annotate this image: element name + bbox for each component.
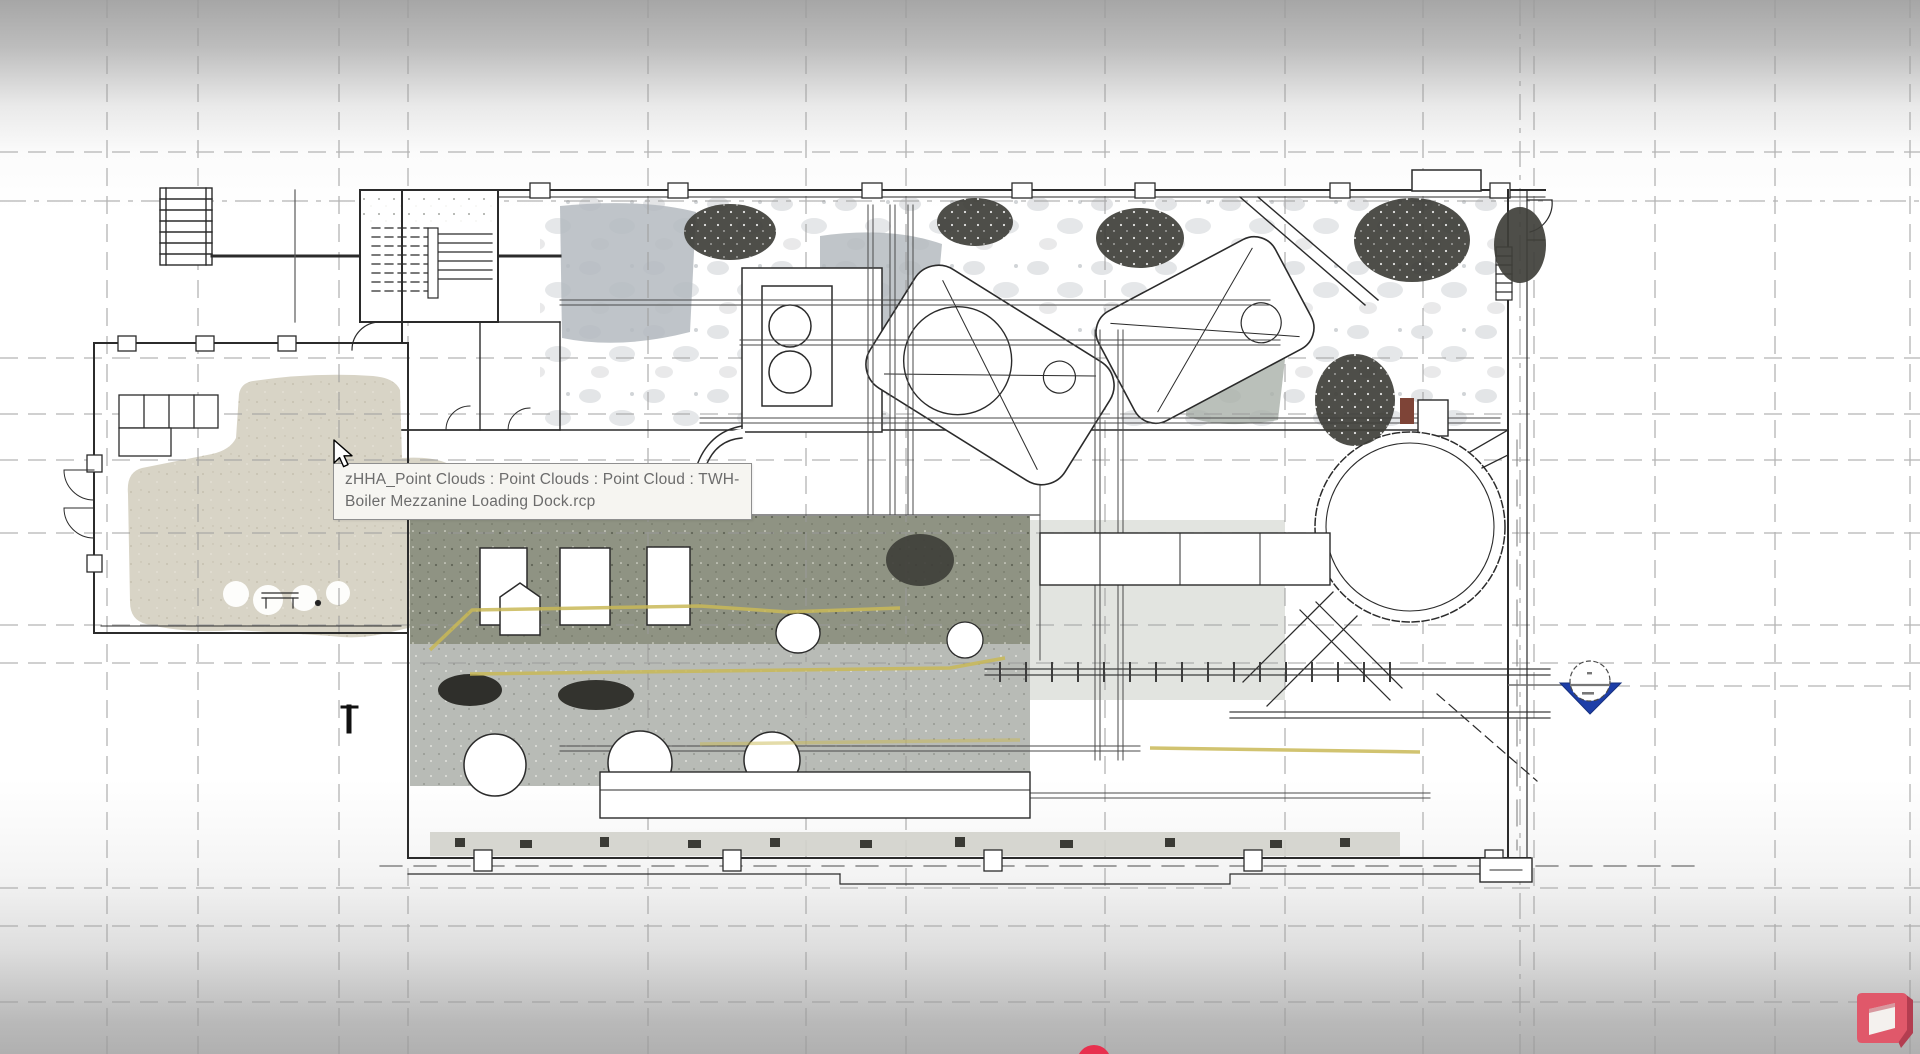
watermark-logo-icon [1851,992,1919,1052]
cursor-icon [331,438,357,470]
floor-plan-view[interactable] [0,0,1920,1054]
drawing-canvas[interactable]: zHHA_Point Clouds : Point Clouds : Point… [0,0,1920,1054]
tooltip-line-1: zHHA_Point Clouds : Point Clouds : Point… [345,469,740,491]
record-dot-icon [1075,1043,1113,1054]
tank-circle [1315,432,1505,622]
element-tooltip: zHHA_Point Clouds : Point Clouds : Point… [333,463,752,520]
tooltip-line-2: Boiler Mezzanine Loading Dock.rcp [345,491,740,513]
